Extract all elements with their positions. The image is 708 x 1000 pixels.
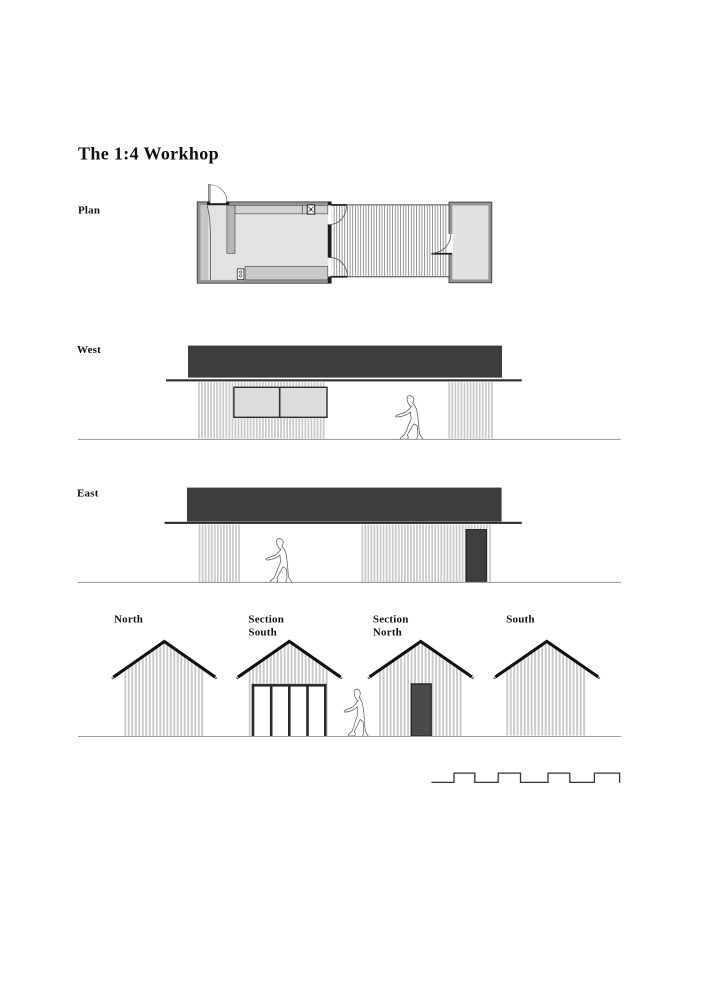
svg-text:Plan: Plan [78,205,100,217]
svg-text:The 1:4 Workhop: The 1:4 Workhop [78,144,219,164]
svg-text:Section: Section [248,613,284,625]
svg-text:North: North [373,626,402,638]
svg-text:Section: Section [373,613,409,625]
svg-text:South: South [506,613,535,625]
svg-text:West: West [77,344,101,356]
svg-text:South: South [248,626,277,638]
svg-text:North: North [114,613,143,625]
svg-text:East: East [77,487,99,499]
